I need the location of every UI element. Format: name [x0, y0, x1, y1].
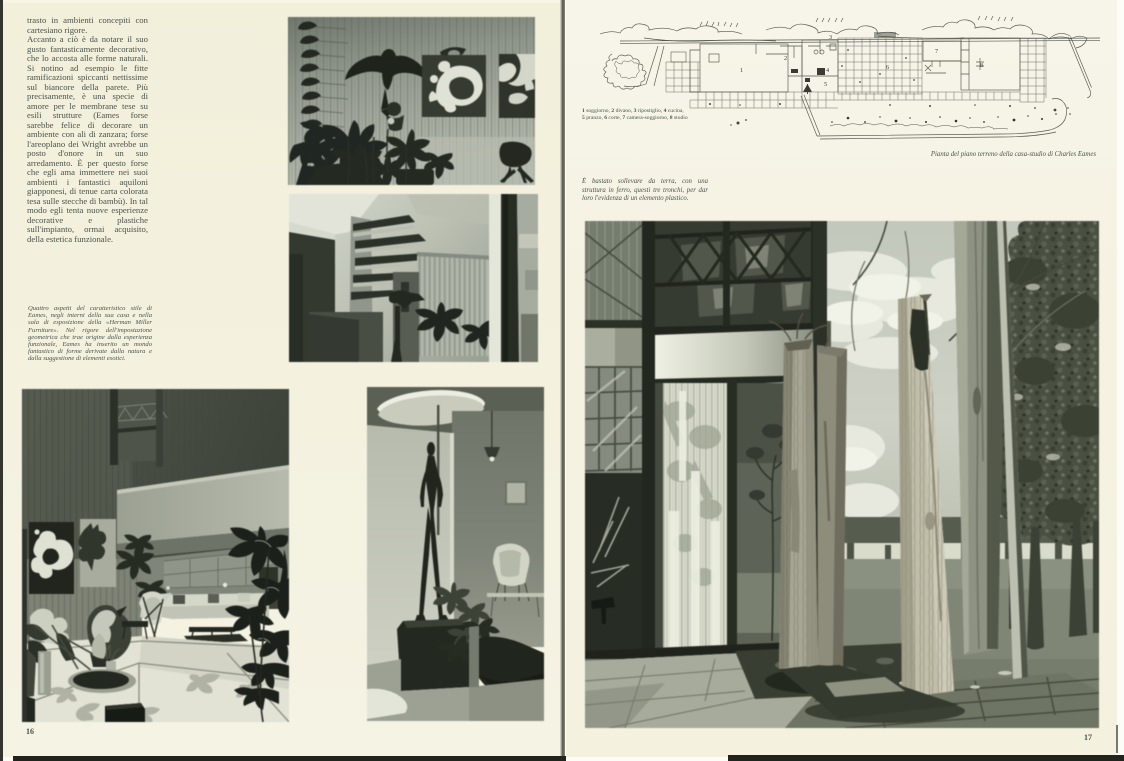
svg-text:1: 1	[740, 67, 743, 74]
svg-text:2: 2	[784, 55, 787, 62]
svg-text:7: 7	[935, 48, 938, 55]
svg-text:8: 8	[980, 62, 983, 69]
svg-text:3: 3	[829, 34, 832, 41]
svg-text:5: 5	[824, 81, 827, 88]
svg-text:4: 4	[826, 67, 829, 74]
svg-text:6: 6	[886, 64, 889, 71]
